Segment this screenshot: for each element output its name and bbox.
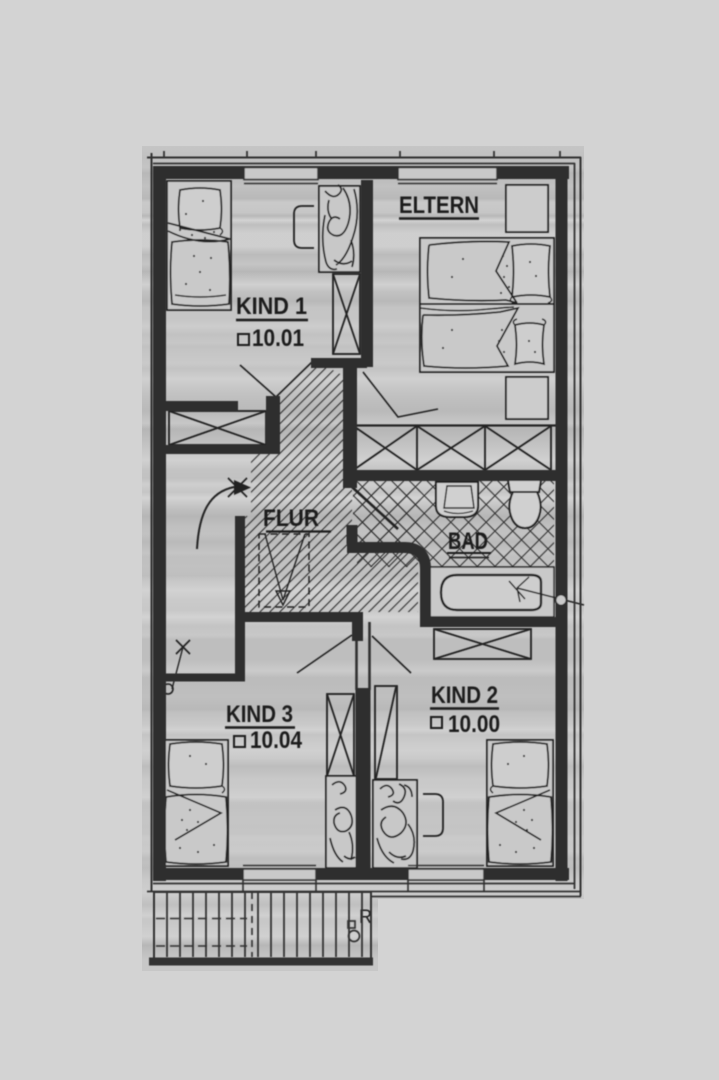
svg-text:10.00: 10.00 — [448, 711, 500, 738]
svg-text:KIND 3: KIND 3 — [226, 701, 293, 728]
svg-text:KIND 2: KIND 2 — [431, 682, 498, 709]
svg-text:ELTERN: ELTERN — [399, 192, 479, 219]
svg-text:KIND 1: KIND 1 — [236, 293, 307, 320]
svg-text:FLUR: FLUR — [263, 505, 319, 532]
svg-text:BAD: BAD — [448, 528, 488, 555]
svg-text:10.04: 10.04 — [250, 727, 303, 754]
svg-text:10.01: 10.01 — [252, 325, 304, 352]
